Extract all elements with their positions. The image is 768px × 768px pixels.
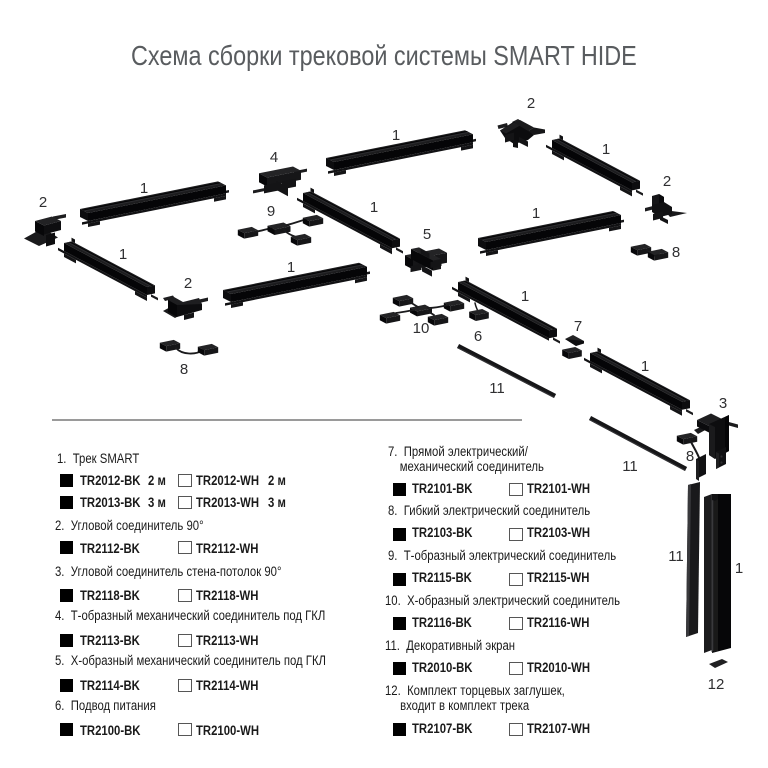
svg-text:2: 2 xyxy=(663,173,671,190)
svg-text:1: 1 xyxy=(287,259,295,276)
svg-text:1: 1 xyxy=(641,358,649,375)
svg-text:1: 1 xyxy=(119,246,127,263)
svg-text:1: 1 xyxy=(602,141,610,158)
svg-text:2: 2 xyxy=(527,95,535,112)
svg-text:1: 1 xyxy=(370,199,378,216)
svg-text:2: 2 xyxy=(184,275,192,292)
svg-text:1: 1 xyxy=(532,205,540,222)
svg-text:3: 3 xyxy=(719,395,727,412)
svg-text:1: 1 xyxy=(735,560,743,577)
svg-text:1: 1 xyxy=(392,127,400,144)
svg-text:12: 12 xyxy=(708,676,725,693)
svg-text:11: 11 xyxy=(668,548,684,565)
svg-text:11: 11 xyxy=(622,458,638,475)
svg-text:1: 1 xyxy=(140,180,148,197)
svg-text:8: 8 xyxy=(686,448,694,465)
svg-text:11: 11 xyxy=(489,380,505,397)
svg-text:5: 5 xyxy=(423,226,431,243)
svg-text:8: 8 xyxy=(180,361,188,378)
svg-text:6: 6 xyxy=(474,328,482,345)
svg-text:9: 9 xyxy=(267,203,275,220)
svg-text:1: 1 xyxy=(521,288,529,305)
svg-text:7: 7 xyxy=(574,318,582,335)
svg-text:10: 10 xyxy=(413,320,430,337)
svg-text:8: 8 xyxy=(672,244,680,261)
svg-text:2: 2 xyxy=(39,194,47,211)
svg-text:4: 4 xyxy=(270,149,278,166)
